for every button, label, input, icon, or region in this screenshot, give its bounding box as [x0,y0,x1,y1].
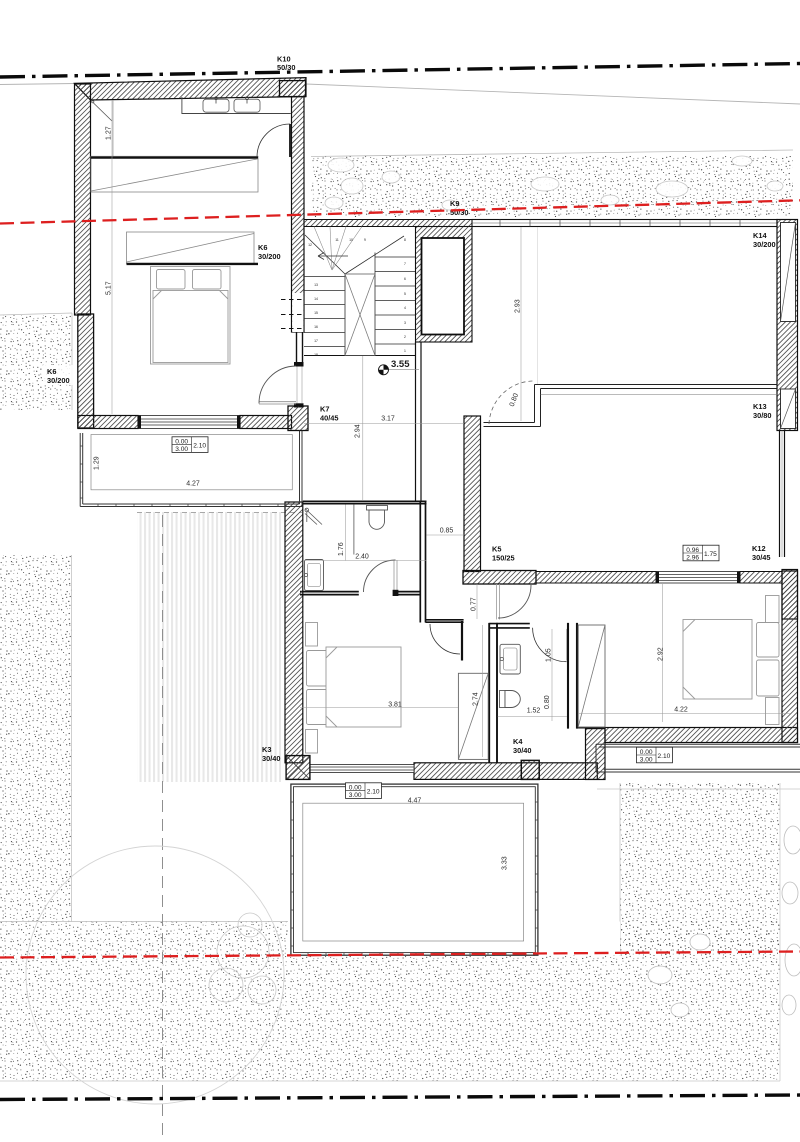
svg-text:1.52: 1.52 [527,708,541,715]
svg-text:0.77: 0.77 [471,597,478,611]
svg-text:18: 18 [314,353,318,357]
svg-text:17: 17 [314,339,318,343]
svg-text:11: 11 [335,238,339,242]
svg-text:30/40: 30/40 [513,746,532,755]
svg-text:K6: K6 [47,367,56,376]
svg-text:7: 7 [404,262,406,266]
svg-text:3.00: 3.00 [349,792,362,799]
svg-text:16: 16 [314,325,318,329]
svg-text:2.10: 2.10 [193,443,206,450]
svg-text:30/40: 30/40 [262,754,281,763]
svg-text:4.22: 4.22 [674,707,688,714]
svg-text:9: 9 [364,238,366,242]
svg-text:2.94: 2.94 [355,424,362,438]
svg-text:3.33: 3.33 [502,856,509,870]
svg-text:6: 6 [404,277,406,281]
svg-text:3.81: 3.81 [388,702,402,709]
svg-text:5: 5 [404,292,406,296]
svg-text:2: 2 [404,335,406,339]
svg-text:3.55: 3.55 [391,359,410,370]
svg-text:K12: K12 [752,544,766,553]
svg-text:13: 13 [314,283,318,287]
svg-text:2.10: 2.10 [367,789,380,796]
svg-text:0.00: 0.00 [349,784,362,791]
svg-text:0.96: 0.96 [686,547,699,554]
svg-text:2.10: 2.10 [657,753,670,760]
svg-text:1: 1 [404,349,406,353]
svg-text:1.05: 1.05 [546,648,553,662]
svg-text:30/80: 30/80 [753,411,772,420]
svg-text:10: 10 [349,238,353,242]
svg-text:3.00: 3.00 [175,446,188,453]
svg-text:2.96: 2.96 [686,555,699,562]
svg-text:8: 8 [404,238,406,242]
svg-text:3.00: 3.00 [640,757,653,764]
svg-text:0.80: 0.80 [544,695,551,709]
svg-text:30/45: 30/45 [752,553,771,562]
svg-text:2.74: 2.74 [473,692,480,706]
svg-text:2.93: 2.93 [515,299,522,313]
svg-text:K4: K4 [513,737,523,746]
svg-text:K3: K3 [262,745,271,754]
svg-text:4.27: 4.27 [186,481,200,488]
svg-text:K5: K5 [492,545,501,554]
svg-text:40/45: 40/45 [320,414,339,423]
svg-text:4.47: 4.47 [408,798,422,805]
svg-text:1.29: 1.29 [94,456,101,470]
svg-text:3.17: 3.17 [381,416,395,423]
svg-text:3: 3 [404,321,406,325]
svg-text:0.85: 0.85 [440,528,454,535]
svg-text:0.00: 0.00 [640,749,653,756]
svg-text:30/200: 30/200 [47,376,70,385]
svg-text:5.17: 5.17 [106,281,113,295]
svg-text:K6: K6 [258,243,267,252]
svg-text:K13: K13 [753,402,767,411]
svg-text:1.76: 1.76 [338,542,345,556]
svg-text:K9: K9 [450,199,459,208]
svg-text:12: 12 [308,243,312,247]
svg-text:K7: K7 [320,405,329,414]
svg-text:14: 14 [314,297,318,301]
svg-text:1.27: 1.27 [106,126,113,140]
svg-text:15: 15 [314,311,318,315]
svg-text:30/200: 30/200 [753,240,776,249]
svg-text:1.75: 1.75 [704,551,717,558]
svg-text:30/200: 30/200 [258,252,281,261]
svg-text:150/25: 150/25 [492,554,515,563]
svg-text:4: 4 [404,306,406,310]
svg-text:2.40: 2.40 [355,554,369,561]
svg-text:K14: K14 [753,231,767,240]
svg-text:0.00: 0.00 [175,438,188,445]
svg-text:2.92: 2.92 [658,647,665,661]
